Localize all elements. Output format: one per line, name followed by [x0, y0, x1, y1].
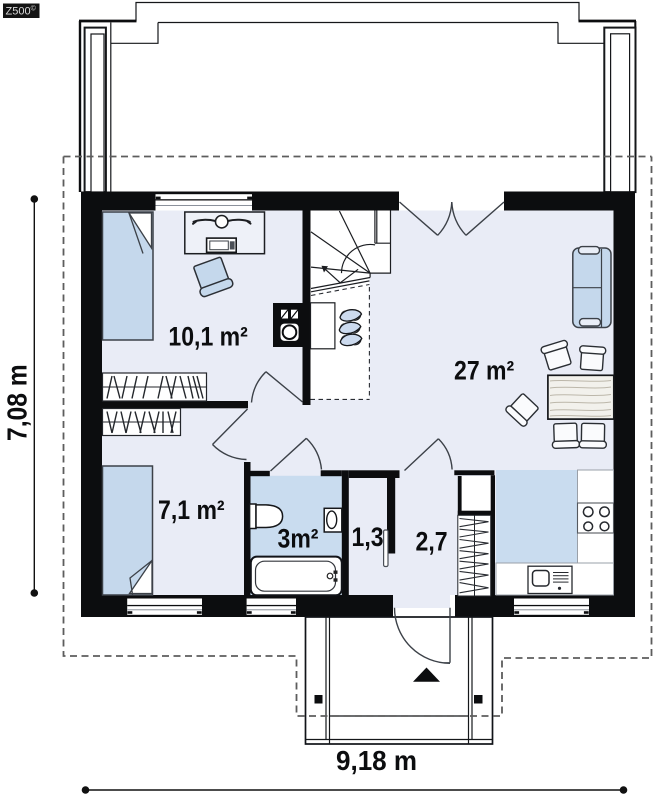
svg-text:7,08 m: 7,08 m	[1, 364, 33, 441]
svg-text:1,3: 1,3	[352, 524, 384, 553]
svg-text:7,1 m²: 7,1 m²	[158, 497, 225, 526]
svg-text:27 m²: 27 m²	[454, 357, 514, 386]
svg-text:2,7: 2,7	[416, 528, 448, 557]
svg-text:9,18 m: 9,18 m	[336, 745, 417, 776]
svg-text:10,1 m²: 10,1 m²	[168, 323, 247, 352]
svg-text:3m²: 3m²	[278, 525, 319, 554]
